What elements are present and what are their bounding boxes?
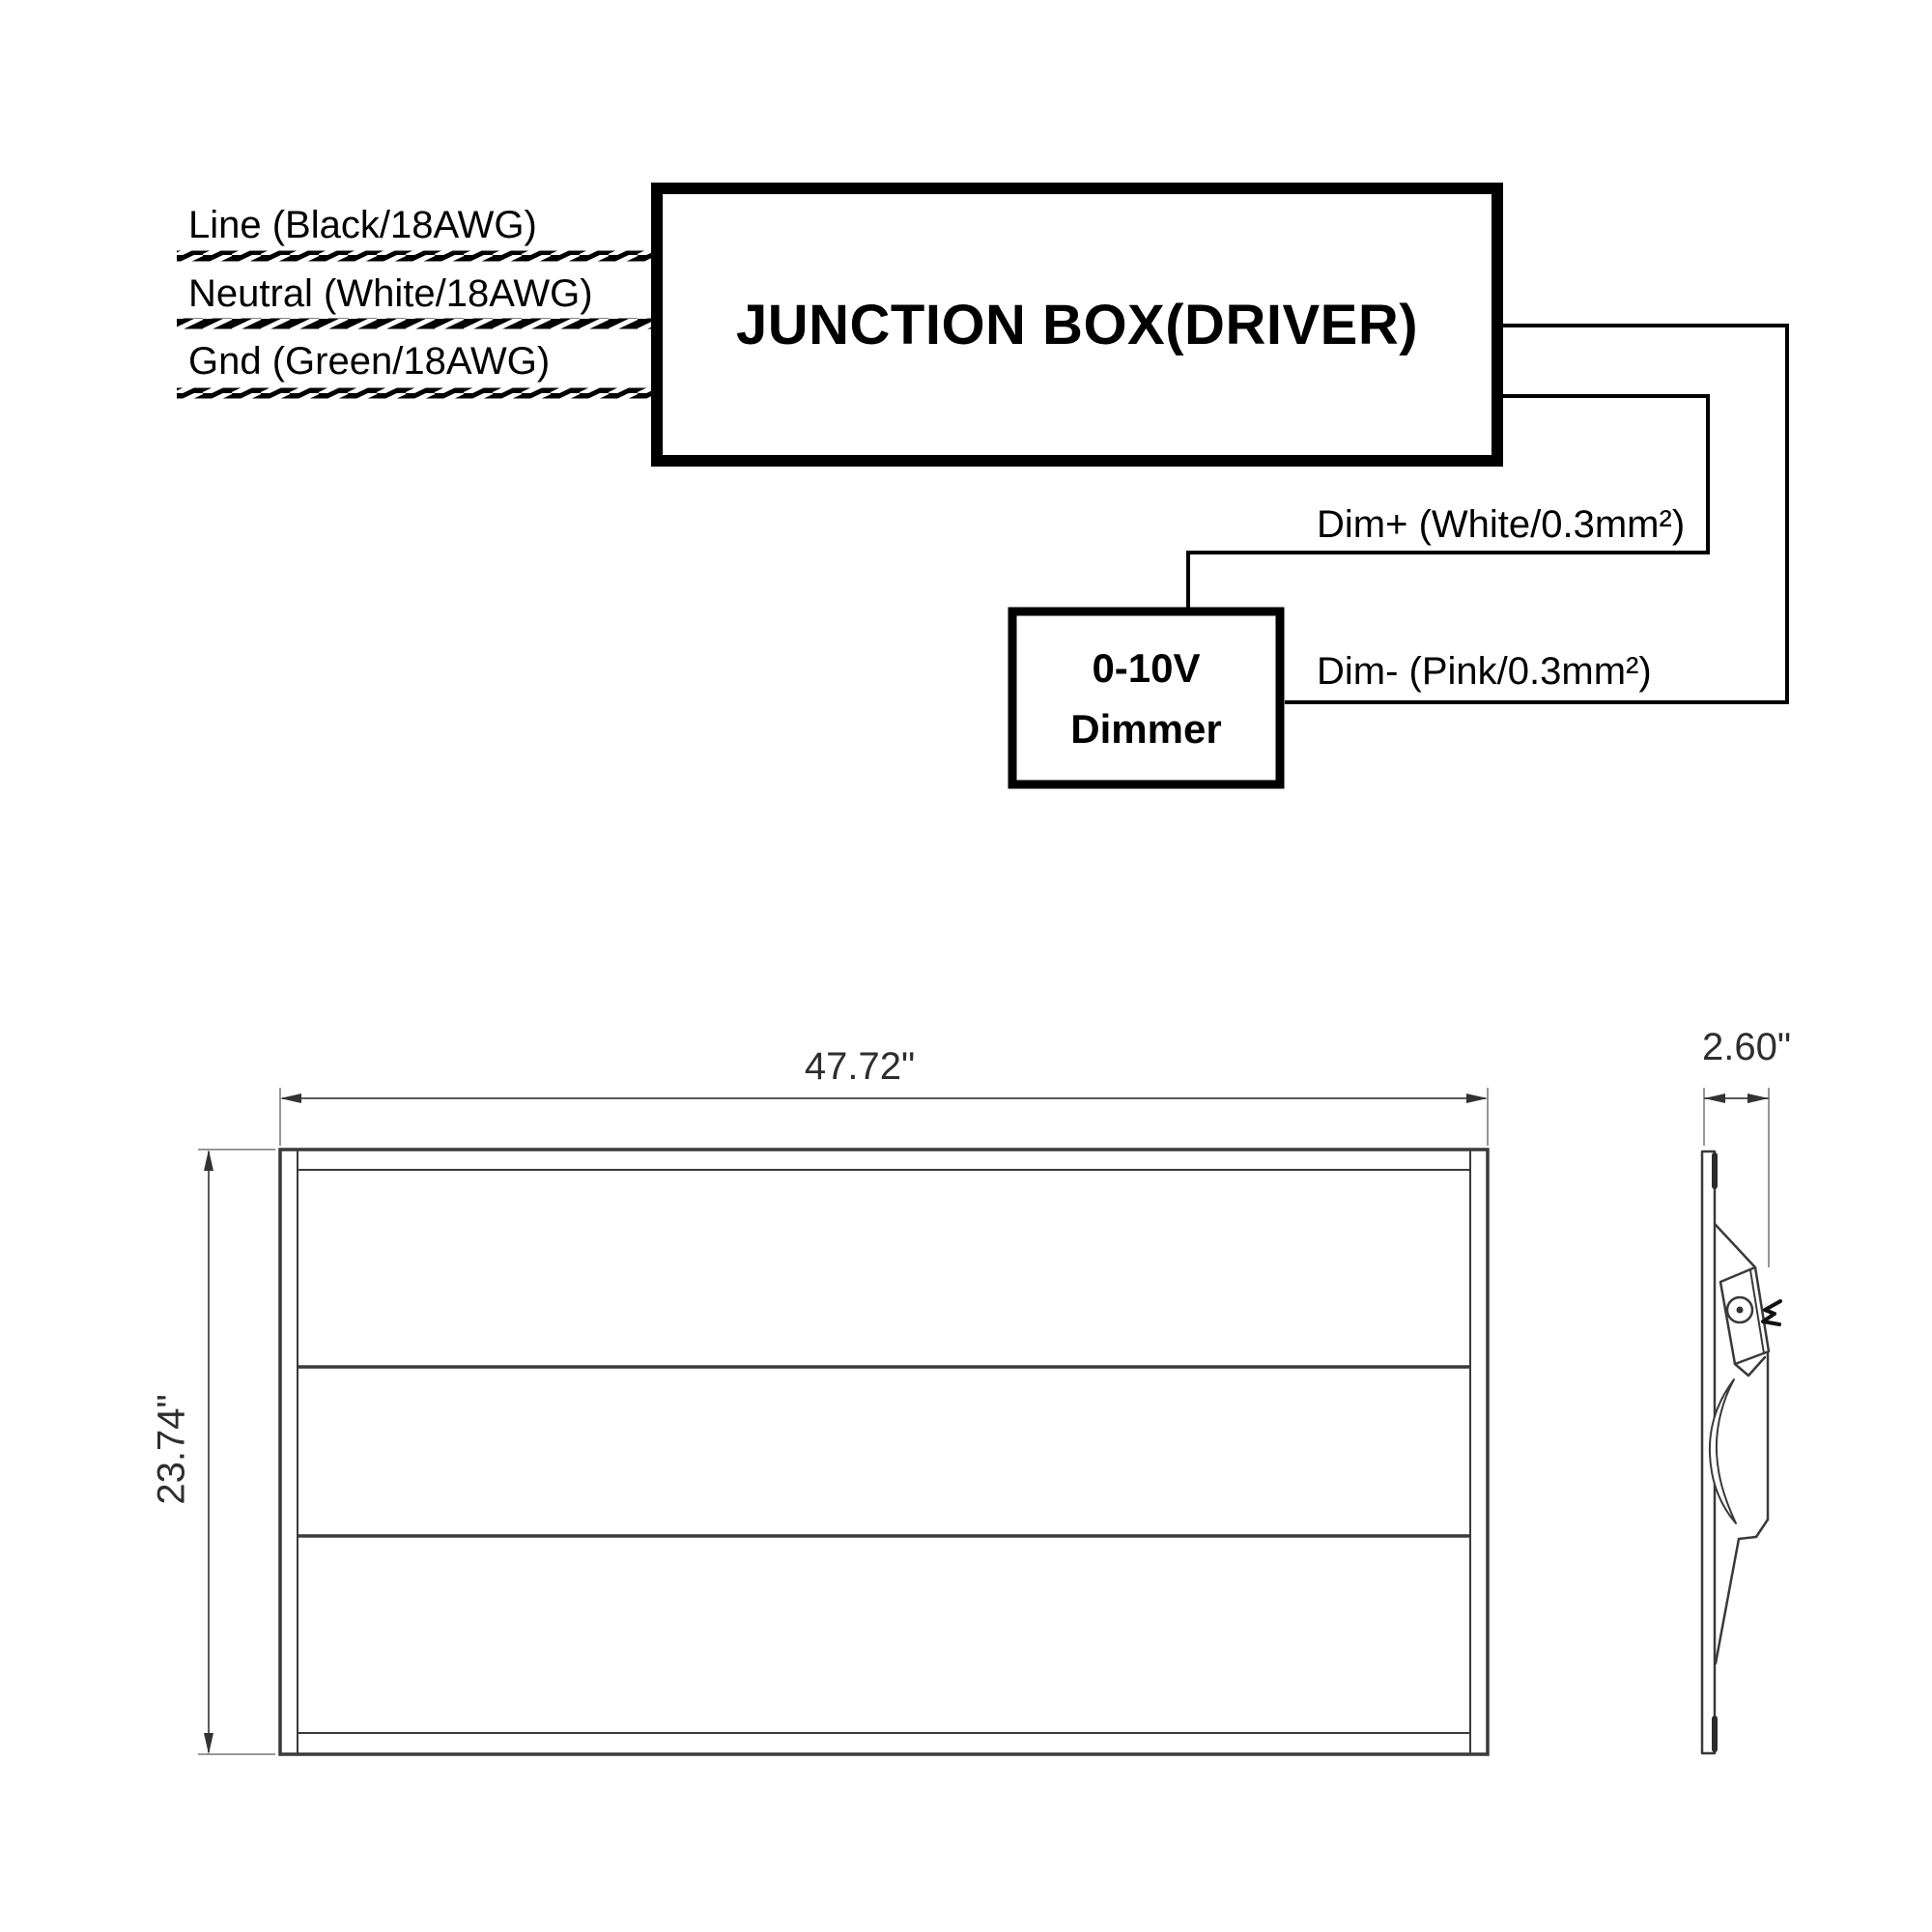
neutral-wire-label: Neutral (White/18AWG) bbox=[188, 270, 593, 317]
depth-dimension-label: 2.60" bbox=[1650, 1026, 1843, 1069]
height-dimension-label: 23.74" bbox=[151, 1334, 194, 1566]
width-dimension-label: 47.72" bbox=[763, 1045, 956, 1089]
gnd-wire-label: Gnd (Green/18AWG) bbox=[188, 338, 550, 384]
side-view-bracket-lower-edge bbox=[1716, 1520, 1768, 1663]
depth-arrow-right bbox=[1747, 1094, 1769, 1103]
side-view-spring-clip-mark bbox=[1763, 1301, 1780, 1324]
line-wire-hatched bbox=[177, 251, 657, 262]
front-view-outline bbox=[280, 1150, 1488, 1754]
dimension-lines bbox=[198, 1088, 1769, 1754]
height-arrow-top bbox=[204, 1150, 213, 1171]
gnd-wire-hatched bbox=[177, 388, 657, 399]
dimmer-label-line1: 0-10V bbox=[1092, 638, 1200, 698]
height-arrow-bottom bbox=[204, 1733, 213, 1754]
dimmer-box-label-wrap: 0-10V Dimmer bbox=[1008, 607, 1285, 789]
side-view-bracket-upper-edge bbox=[1716, 1225, 1755, 1267]
line-wire-label: Line (Black/18AWG) bbox=[188, 202, 537, 248]
spec-sheet: Line (Black/18AWG) Neutral (White/18AWG)… bbox=[0, 0, 1932, 1932]
dim-minus-label: Dim- (Pink/0.3mm²) bbox=[1317, 648, 1652, 695]
junction-box-label: JUNCTION BOX(DRIVER) bbox=[736, 293, 1418, 357]
junction-box-label-wrap: JUNCTION BOX(DRIVER) bbox=[651, 183, 1503, 467]
side-view-screw-center bbox=[1737, 1307, 1744, 1314]
neutral-wire-hatched bbox=[177, 319, 657, 329]
width-arrow-left bbox=[280, 1094, 301, 1103]
depth-arrow-left bbox=[1704, 1094, 1725, 1103]
dimmer-label-line2: Dimmer bbox=[1070, 698, 1221, 759]
front-view bbox=[280, 1150, 1488, 1754]
dim-plus-label: Dim+ (White/0.3mm²) bbox=[1317, 501, 1685, 548]
width-arrow-right bbox=[1466, 1094, 1488, 1103]
